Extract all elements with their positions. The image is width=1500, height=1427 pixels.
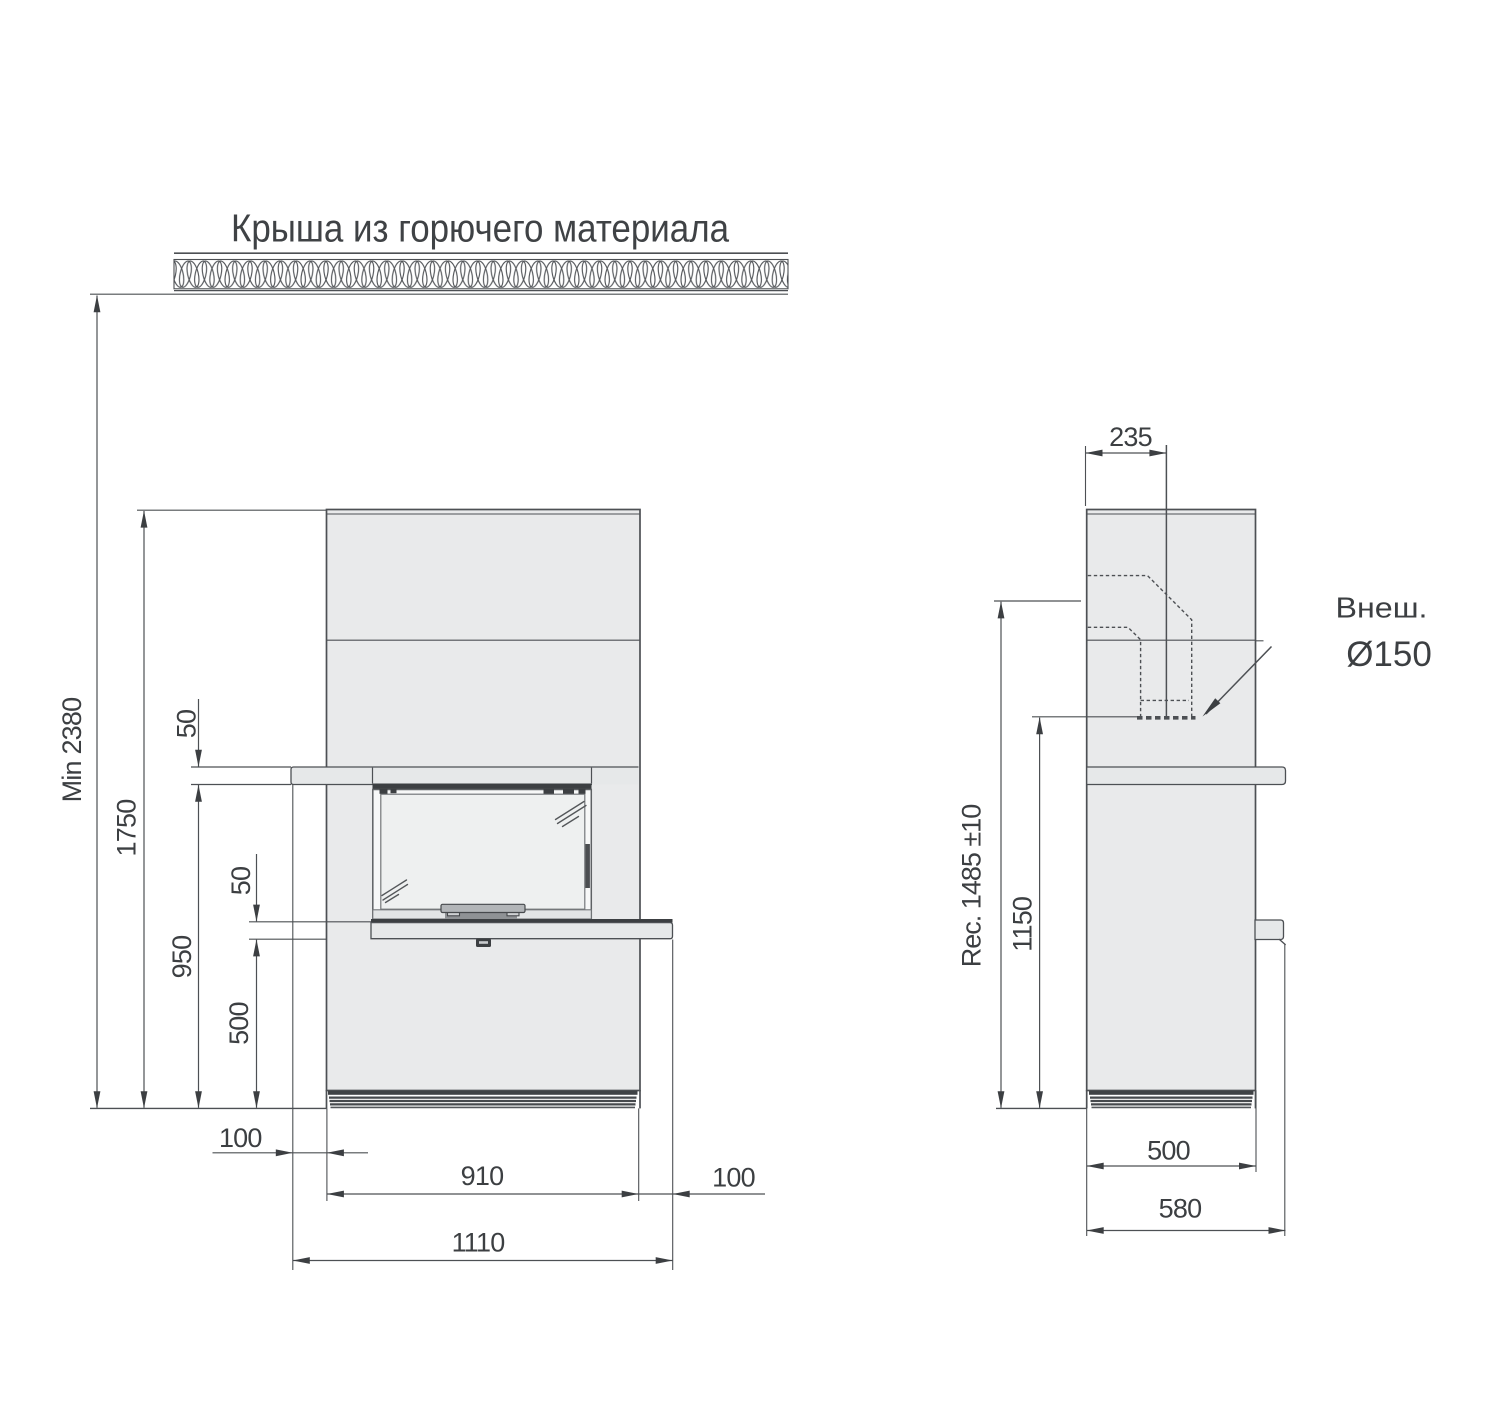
svg-text:1750: 1750: [112, 800, 142, 857]
svg-text:Rec. 1485 ±10: Rec. 1485 ±10: [957, 805, 987, 967]
svg-text:Крыша из горючего материала: Крыша из горючего материала: [231, 208, 729, 251]
svg-text:500: 500: [1147, 1136, 1190, 1166]
svg-text:50: 50: [226, 867, 256, 895]
svg-text:1110: 1110: [452, 1228, 505, 1258]
svg-text:1150: 1150: [1008, 897, 1038, 952]
svg-text:580: 580: [1159, 1194, 1202, 1224]
svg-text:Внеш.: Внеш.: [1336, 593, 1428, 625]
svg-text:910: 910: [461, 1161, 504, 1191]
svg-text:Min 2380: Min 2380: [57, 698, 87, 803]
svg-text:500: 500: [224, 1002, 254, 1045]
svg-text:100: 100: [219, 1123, 262, 1153]
svg-text:100: 100: [712, 1163, 755, 1193]
svg-text:235: 235: [1109, 422, 1152, 452]
svg-text:50: 50: [172, 710, 202, 738]
svg-text:Ø150: Ø150: [1346, 635, 1432, 674]
svg-text:950: 950: [167, 936, 197, 979]
